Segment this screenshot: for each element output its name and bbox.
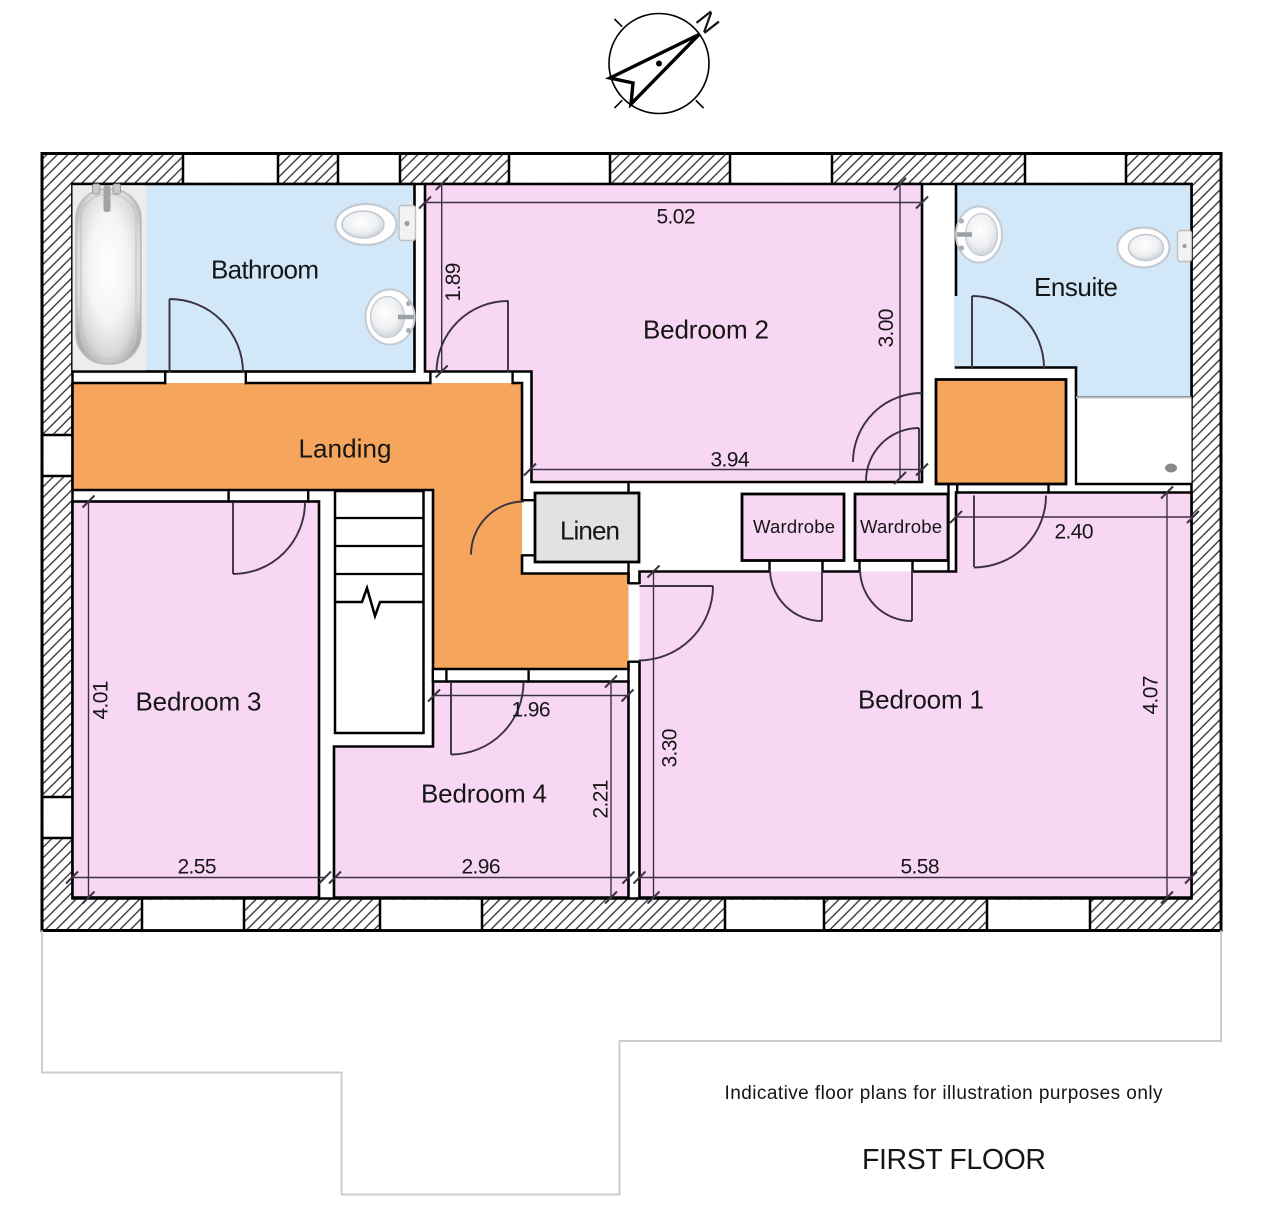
svg-text:Bedroom 2: Bedroom 2 (643, 315, 769, 345)
svg-text:1.89: 1.89 (442, 263, 465, 302)
svg-text:2.55: 2.55 (178, 856, 217, 879)
svg-text:2.96: 2.96 (462, 856, 501, 879)
svg-text:5.58: 5.58 (901, 856, 940, 879)
svg-text:Bedroom 3: Bedroom 3 (136, 687, 262, 717)
svg-text:4.01: 4.01 (90, 681, 113, 720)
svg-text:Landing: Landing (299, 434, 392, 464)
svg-text:Bedroom 1: Bedroom 1 (858, 685, 984, 715)
svg-text:4.07: 4.07 (1140, 676, 1163, 715)
svg-text:2.21: 2.21 (590, 780, 613, 819)
svg-text:2.40: 2.40 (1055, 521, 1094, 544)
svg-text:3.00: 3.00 (875, 309, 898, 348)
svg-text:Bathroom: Bathroom (211, 255, 319, 285)
svg-text:Wardrobe: Wardrobe (753, 516, 835, 537)
svg-text:FIRST FLOOR: FIRST FLOOR (862, 1144, 1046, 1176)
svg-text:Bedroom 4: Bedroom 4 (421, 779, 547, 809)
svg-text:Indicative floor plans for ill: Indicative floor plans for illustration … (725, 1083, 1164, 1104)
svg-text:5.02: 5.02 (657, 206, 696, 229)
svg-text:Linen: Linen (560, 516, 620, 546)
svg-text:1.96: 1.96 (512, 699, 551, 722)
svg-text:3.30: 3.30 (659, 729, 682, 768)
svg-text:Wardrobe: Wardrobe (860, 516, 942, 537)
svg-text:Ensuite: Ensuite (1034, 272, 1118, 302)
svg-text:3.94: 3.94 (711, 449, 750, 472)
